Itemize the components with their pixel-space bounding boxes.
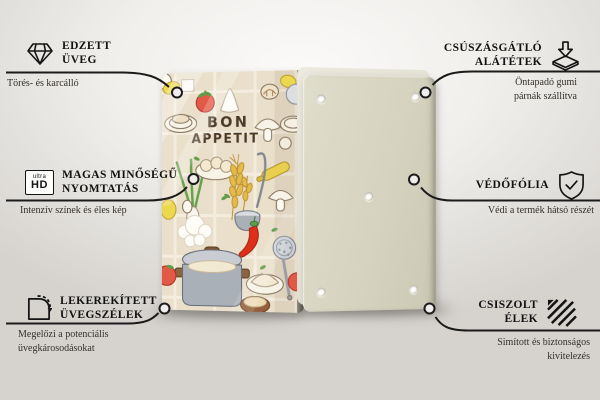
callout-title-line: ÉLEK xyxy=(504,313,538,327)
ultra-hd-icon: ultra HD xyxy=(25,170,54,195)
callout-polished-edges: CSISZOLT ÉLEK xyxy=(478,298,577,327)
callout-subtitle-line: üvegkárosodásokat xyxy=(18,342,109,356)
callout-subtitle-line: Öntapadó gumi xyxy=(514,76,577,90)
polished-edges-icon xyxy=(546,298,577,327)
shield-check-icon xyxy=(557,170,586,201)
callout-protective-film-subtitle: Védi a termék hátsó részét xyxy=(488,204,594,218)
callout-title-line: VÉDŐFÓLIA xyxy=(476,179,549,193)
callout-polished-edges-subtitle: Simított és biztonságos kivitelezés xyxy=(497,336,590,364)
callout-anti-slip-pads: CSÚSZÁSGÁTLÓ ALÁTÉTEK xyxy=(444,40,581,71)
callout-high-quality-print: ultra HD MAGAS MINŐSÉGŰ NYOMTATÁS xyxy=(25,169,177,197)
front-board-print: BON APPETIT xyxy=(162,70,304,313)
callout-title-line: LEKEREKÍTETT xyxy=(60,295,157,309)
callout-rounded-edges-subtitle: Megelőzi a potenciális üvegkárosodásokat xyxy=(18,328,109,356)
callout-protective-film: VÉDŐFÓLIA xyxy=(476,170,586,201)
pad-hole xyxy=(364,192,373,201)
callout-subtitle-line: Simított és biztonságos xyxy=(497,336,590,350)
callout-subtitle-line: kivitelezés xyxy=(497,350,590,364)
rounded-corner-icon xyxy=(25,295,52,322)
back-board-panel xyxy=(303,74,436,312)
callout-anti-slip-pads-subtitle: Öntapadó gumi párnák szállítva xyxy=(514,76,577,104)
callout-title-line: CSÚSZÁSGÁTLÓ xyxy=(444,42,542,56)
front-board: BON APPETIT xyxy=(162,70,304,313)
callout-title-line: EDZETT xyxy=(62,40,111,54)
callout-subtitle-line: párnák szállítva xyxy=(514,90,577,104)
back-board xyxy=(303,74,436,312)
callout-subtitle-line: Intenzív színek és éles kép xyxy=(20,204,127,218)
callout-title-line: ALÁTÉTEK xyxy=(475,56,542,70)
diamond-icon xyxy=(26,41,54,67)
mushroom-slice xyxy=(261,84,279,99)
callout-tempered-glass: EDZETT ÜVEG xyxy=(26,40,111,68)
pad-hole xyxy=(411,92,419,101)
callout-rounded-edges: LEKEREKÍTETT ÜVEGSZÉLEK xyxy=(25,295,157,323)
callout-subtitle-line: Védi a termék hátsó részét xyxy=(488,204,594,218)
callout-title-line: MAGAS MINŐSÉGŰ xyxy=(62,169,177,183)
callout-title-line: NYOMTATÁS xyxy=(62,183,177,197)
pad-hole xyxy=(317,288,326,297)
kitchen-illustration: BON APPETIT xyxy=(162,70,297,313)
product-infographic: BON APPETIT xyxy=(0,0,600,400)
callout-title-line: ÜVEG xyxy=(62,54,111,68)
callout-high-quality-print-subtitle: Intenzív színek és éles kép xyxy=(20,204,127,218)
callout-subtitle-line: Megelőzi a potenciális xyxy=(18,328,109,342)
pad-hole xyxy=(409,285,418,294)
callout-title-line: CSISZOLT xyxy=(478,299,538,313)
callout-title-line: ÜVEGSZÉLEK xyxy=(60,309,157,323)
egg xyxy=(183,200,192,213)
pad-hole xyxy=(317,94,326,103)
callout-tempered-glass-subtitle: Törés- és karcálló xyxy=(7,77,79,91)
anti-slip-pads-icon xyxy=(550,40,581,71)
ultra-hd-icon-big-text: HD xyxy=(31,180,48,191)
callout-subtitle-line: Törés- és karcálló xyxy=(7,77,79,91)
